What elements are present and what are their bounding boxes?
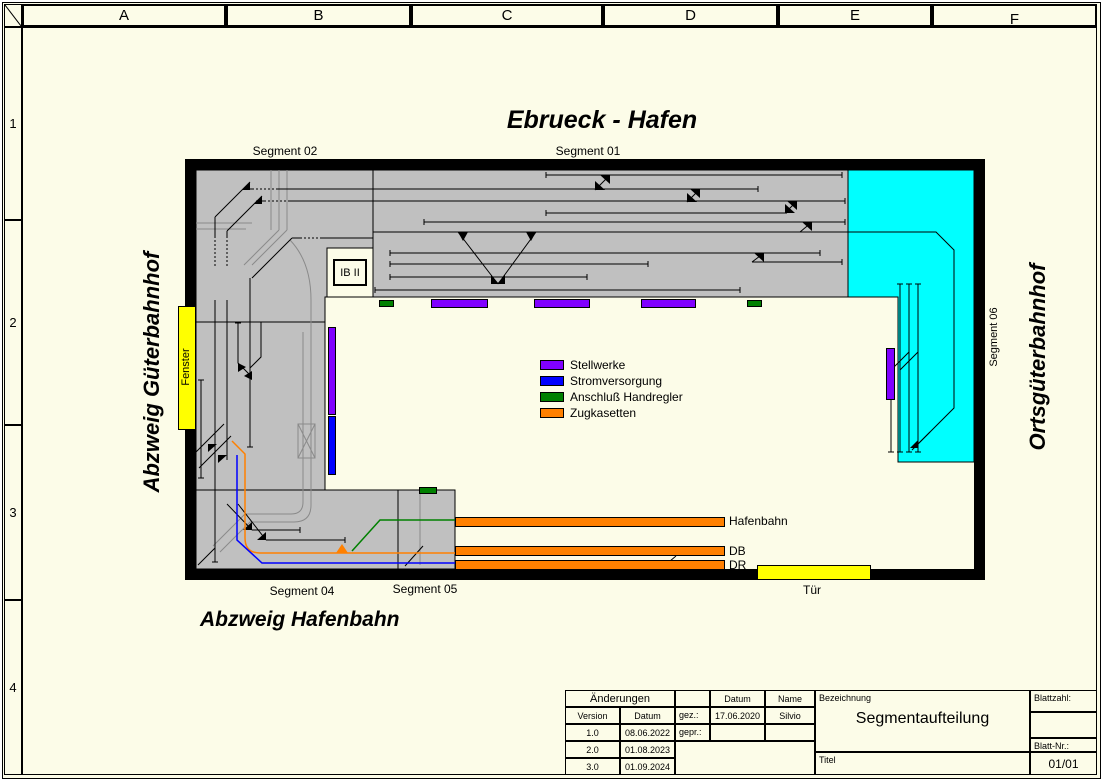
gepr-label: gepr.: bbox=[675, 724, 710, 741]
blattnr-cell: Blatt-Nr.: bbox=[1030, 738, 1097, 752]
stellwerk-bar-1 bbox=[431, 299, 488, 308]
name-col-header: Name bbox=[765, 690, 815, 707]
ib-box-label: IB II bbox=[340, 267, 360, 279]
segment-05-label: Segment 05 bbox=[367, 582, 483, 596]
version-2: 2.0 bbox=[565, 741, 620, 758]
blattnr-value: 01/01 bbox=[1030, 752, 1097, 775]
cassette-label-dr: DR bbox=[729, 558, 746, 572]
legend-item-handregler: Anschluß Handregler bbox=[540, 389, 750, 405]
gepr-name bbox=[765, 724, 815, 741]
segment-02-label: Segment 02 bbox=[227, 144, 343, 158]
gez-label: gez.: bbox=[675, 707, 710, 724]
cassette-label-db: DB bbox=[729, 544, 746, 558]
titel-label: Titel bbox=[819, 755, 836, 765]
legend-swatch-stellwerke bbox=[540, 360, 564, 370]
legend-swatch-handregler bbox=[540, 392, 564, 402]
version-1: 1.0 bbox=[565, 724, 620, 741]
stellwerk-bar-2 bbox=[534, 299, 590, 308]
blank-area bbox=[675, 741, 815, 775]
door-label: Tür bbox=[762, 583, 862, 597]
blattnr-label: Blatt-Nr.: bbox=[1034, 741, 1069, 751]
bezeichnung-value: Segmentaufteilung bbox=[815, 704, 1030, 734]
station-label-right: Ortsgüterbahnhof bbox=[1025, 222, 1051, 492]
version-1-date: 08.06.2022 bbox=[620, 724, 675, 741]
legend: Stellwerke Stromversorgung Anschluß Hand… bbox=[540, 357, 750, 421]
handregler-bar-3 bbox=[419, 487, 437, 494]
legend-label: Anschluß Handregler bbox=[570, 390, 683, 404]
version-header: Version bbox=[565, 707, 620, 724]
title-block: Änderungen Version Datum 1.0 08.06.2022 … bbox=[565, 690, 1097, 775]
handregler-bar-2 bbox=[747, 300, 762, 307]
cassette-bar-dr bbox=[455, 560, 725, 570]
window-label: Fenster bbox=[180, 307, 194, 427]
legend-item-stellwerke: Stellwerke bbox=[540, 357, 750, 373]
datum-header: Datum bbox=[620, 707, 675, 724]
legend-item-stromversorgung: Stromversorgung bbox=[540, 373, 750, 389]
blattzahl-cell: Blattzahl: bbox=[1030, 690, 1097, 712]
legend-label: Zugkasetten bbox=[570, 406, 636, 420]
stellwerk-bar-right bbox=[886, 348, 895, 400]
station-label-bottom: Abzweig Hafenbahn bbox=[200, 608, 460, 636]
handregler-bar-1 bbox=[379, 300, 394, 307]
stellwerk-bar-left bbox=[328, 327, 336, 415]
legend-label: Stromversorgung bbox=[570, 374, 662, 388]
segment-04-label: Segment 04 bbox=[244, 584, 360, 598]
legend-item-zugkasetten: Zugkasetten bbox=[540, 405, 750, 421]
strom-bar bbox=[328, 416, 336, 475]
datum-col-header: Datum bbox=[710, 690, 765, 707]
gez-date: 17.06.2020 bbox=[710, 707, 765, 724]
drawing-sheet: { "frame": { "columns": ["A","B","C","D"… bbox=[0, 0, 1103, 781]
segment-06-label: Segment 06 bbox=[988, 297, 1002, 377]
version-3: 3.0 bbox=[565, 758, 620, 775]
cassette-label-hafenbahn: Hafenbahn bbox=[729, 514, 788, 528]
changes-header: Änderungen bbox=[565, 690, 675, 707]
blank-cell bbox=[675, 690, 710, 707]
legend-swatch-zugkasetten bbox=[540, 408, 564, 418]
door-bar bbox=[757, 565, 871, 580]
stellwerk-bar-3 bbox=[641, 299, 696, 308]
gepr-date bbox=[710, 724, 765, 741]
blattzahl-value bbox=[1030, 712, 1097, 738]
blattzahl-label: Blattzahl: bbox=[1034, 693, 1071, 703]
legend-label: Stellwerke bbox=[570, 358, 625, 372]
station-label-left: Abzweig Güterbahnhof bbox=[139, 217, 165, 527]
legend-swatch-stromversorgung bbox=[540, 376, 564, 386]
version-3-date: 01.09.2024 bbox=[620, 758, 675, 775]
titel-cell: Titel bbox=[815, 752, 1030, 775]
segment-01-label: Segment 01 bbox=[530, 144, 646, 158]
cassette-bar-db bbox=[455, 546, 725, 556]
ib-box: IB II bbox=[333, 259, 367, 286]
bezeichnung-label: Bezeichnung bbox=[819, 693, 871, 703]
page-title: Ebrueck - Hafen bbox=[452, 106, 752, 136]
segment-04-05-area bbox=[196, 490, 455, 569]
gez-name: Silvio bbox=[765, 707, 815, 724]
cassette-bar-hafenbahn bbox=[455, 517, 725, 527]
version-2-date: 01.08.2023 bbox=[620, 741, 675, 758]
